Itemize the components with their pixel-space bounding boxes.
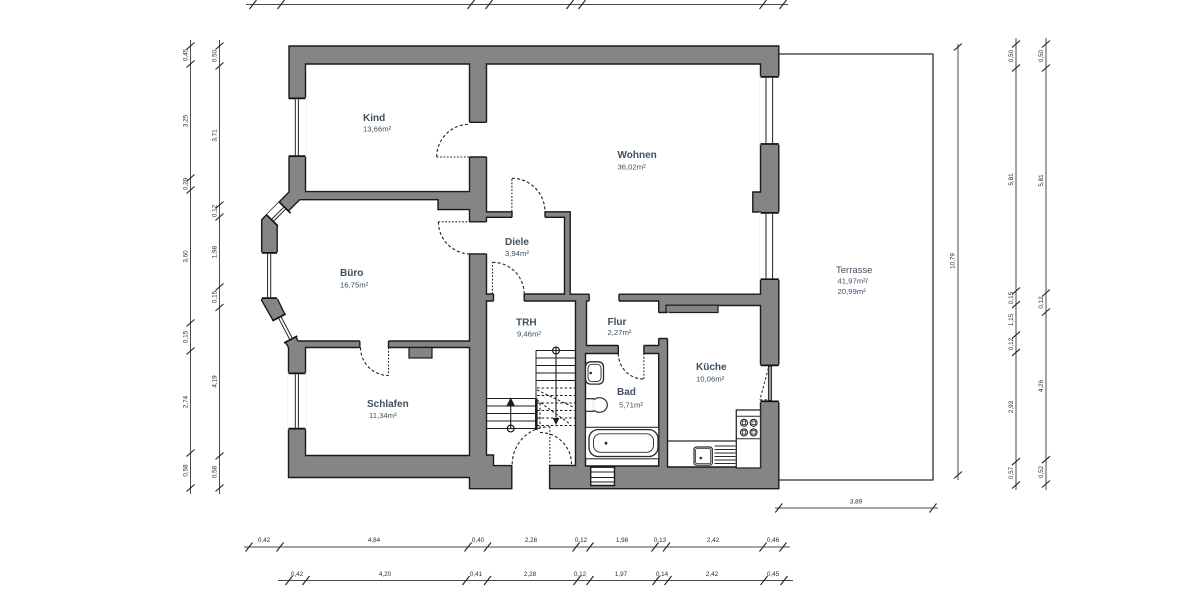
svg-text:Terrasse: Terrasse [836, 265, 872, 276]
svg-text:2,74: 2,74 [183, 395, 190, 408]
svg-text:0,41: 0,41 [470, 571, 483, 578]
svg-text:Schlafen: Schlafen [367, 399, 409, 410]
svg-text:0,15: 0,15 [212, 290, 219, 303]
svg-text:3,94m²: 3,94m² [505, 249, 529, 258]
svg-text:5,81: 5,81 [1008, 173, 1015, 186]
svg-text:TRH: TRH [516, 318, 537, 329]
svg-text:0,13: 0,13 [654, 537, 667, 544]
svg-text:0,12: 0,12 [574, 571, 587, 578]
svg-text:Diele: Diele [505, 237, 529, 248]
svg-text:0,14: 0,14 [656, 571, 669, 578]
svg-text:13,66m²: 13,66m² [363, 125, 392, 134]
svg-text:20,99m²: 20,99m² [838, 287, 867, 296]
svg-text:0,12: 0,12 [1038, 296, 1045, 309]
svg-text:9,46m²: 9,46m² [517, 330, 541, 339]
svg-text:Wohnen: Wohnen [618, 150, 657, 161]
svg-text:0,15: 0,15 [183, 330, 190, 343]
svg-text:0,29: 0,29 [183, 177, 190, 190]
svg-text:0,42: 0,42 [291, 571, 304, 578]
svg-text:0,46: 0,46 [767, 537, 780, 544]
svg-text:5,71m²: 5,71m² [619, 401, 643, 410]
svg-text:0,45: 0,45 [183, 48, 190, 61]
svg-text:Flur: Flur [608, 317, 627, 328]
svg-text:0,50: 0,50 [1008, 49, 1015, 62]
svg-text:Büro: Büro [340, 268, 363, 279]
svg-text:0,12: 0,12 [212, 204, 219, 217]
svg-text:36,02m²: 36,02m² [618, 163, 647, 172]
svg-text:Küche: Küche [696, 362, 727, 373]
svg-text:0,45: 0,45 [767, 571, 780, 578]
svg-text:0,58: 0,58 [183, 464, 190, 477]
svg-text:0,12: 0,12 [1008, 337, 1015, 350]
svg-text:0,40: 0,40 [472, 537, 485, 544]
svg-text:5,81: 5,81 [1038, 174, 1045, 187]
svg-text:3,25: 3,25 [183, 114, 190, 127]
svg-text:2,27m²: 2,27m² [608, 328, 632, 337]
svg-text:0,15: 0,15 [1008, 291, 1015, 304]
svg-text:0,58: 0,58 [212, 465, 219, 478]
svg-text:10,06m²: 10,06m² [696, 375, 725, 384]
svg-text:41,97m²/: 41,97m²/ [838, 277, 869, 286]
svg-text:0,42: 0,42 [258, 537, 271, 544]
svg-text:0,50: 0,50 [1038, 49, 1045, 62]
svg-text:1,97: 1,97 [615, 571, 628, 578]
svg-text:1,98: 1,98 [616, 537, 629, 544]
svg-text:4,84: 4,84 [368, 537, 381, 544]
svg-text:11,34m²: 11,34m² [369, 411, 397, 420]
svg-text:0,12: 0,12 [575, 537, 588, 544]
svg-text:1,98: 1,98 [212, 245, 219, 258]
svg-text:0,50: 0,50 [212, 49, 219, 62]
svg-text:2,42: 2,42 [707, 537, 720, 544]
svg-text:3,89: 3,89 [850, 499, 863, 506]
svg-text:Bad: Bad [617, 387, 636, 398]
svg-text:16,75m²: 16,75m² [340, 281, 369, 290]
svg-text:2,42: 2,42 [706, 571, 719, 578]
svg-text:3,71: 3,71 [212, 129, 219, 142]
svg-text:3,60: 3,60 [183, 250, 190, 263]
svg-text:0,57: 0,57 [1008, 466, 1015, 479]
svg-text:4,19: 4,19 [212, 375, 219, 388]
svg-text:Kind: Kind [363, 113, 385, 124]
svg-text:10,79: 10,79 [950, 253, 957, 269]
svg-text:1,15: 1,15 [1008, 313, 1015, 326]
svg-text:2,28: 2,28 [525, 537, 538, 544]
svg-text:2,93: 2,93 [1008, 400, 1015, 413]
svg-text:4,20: 4,20 [379, 571, 392, 578]
svg-text:2,28: 2,28 [524, 571, 537, 578]
svg-text:0,52: 0,52 [1038, 465, 1045, 478]
svg-text:4,26: 4,26 [1038, 379, 1045, 392]
